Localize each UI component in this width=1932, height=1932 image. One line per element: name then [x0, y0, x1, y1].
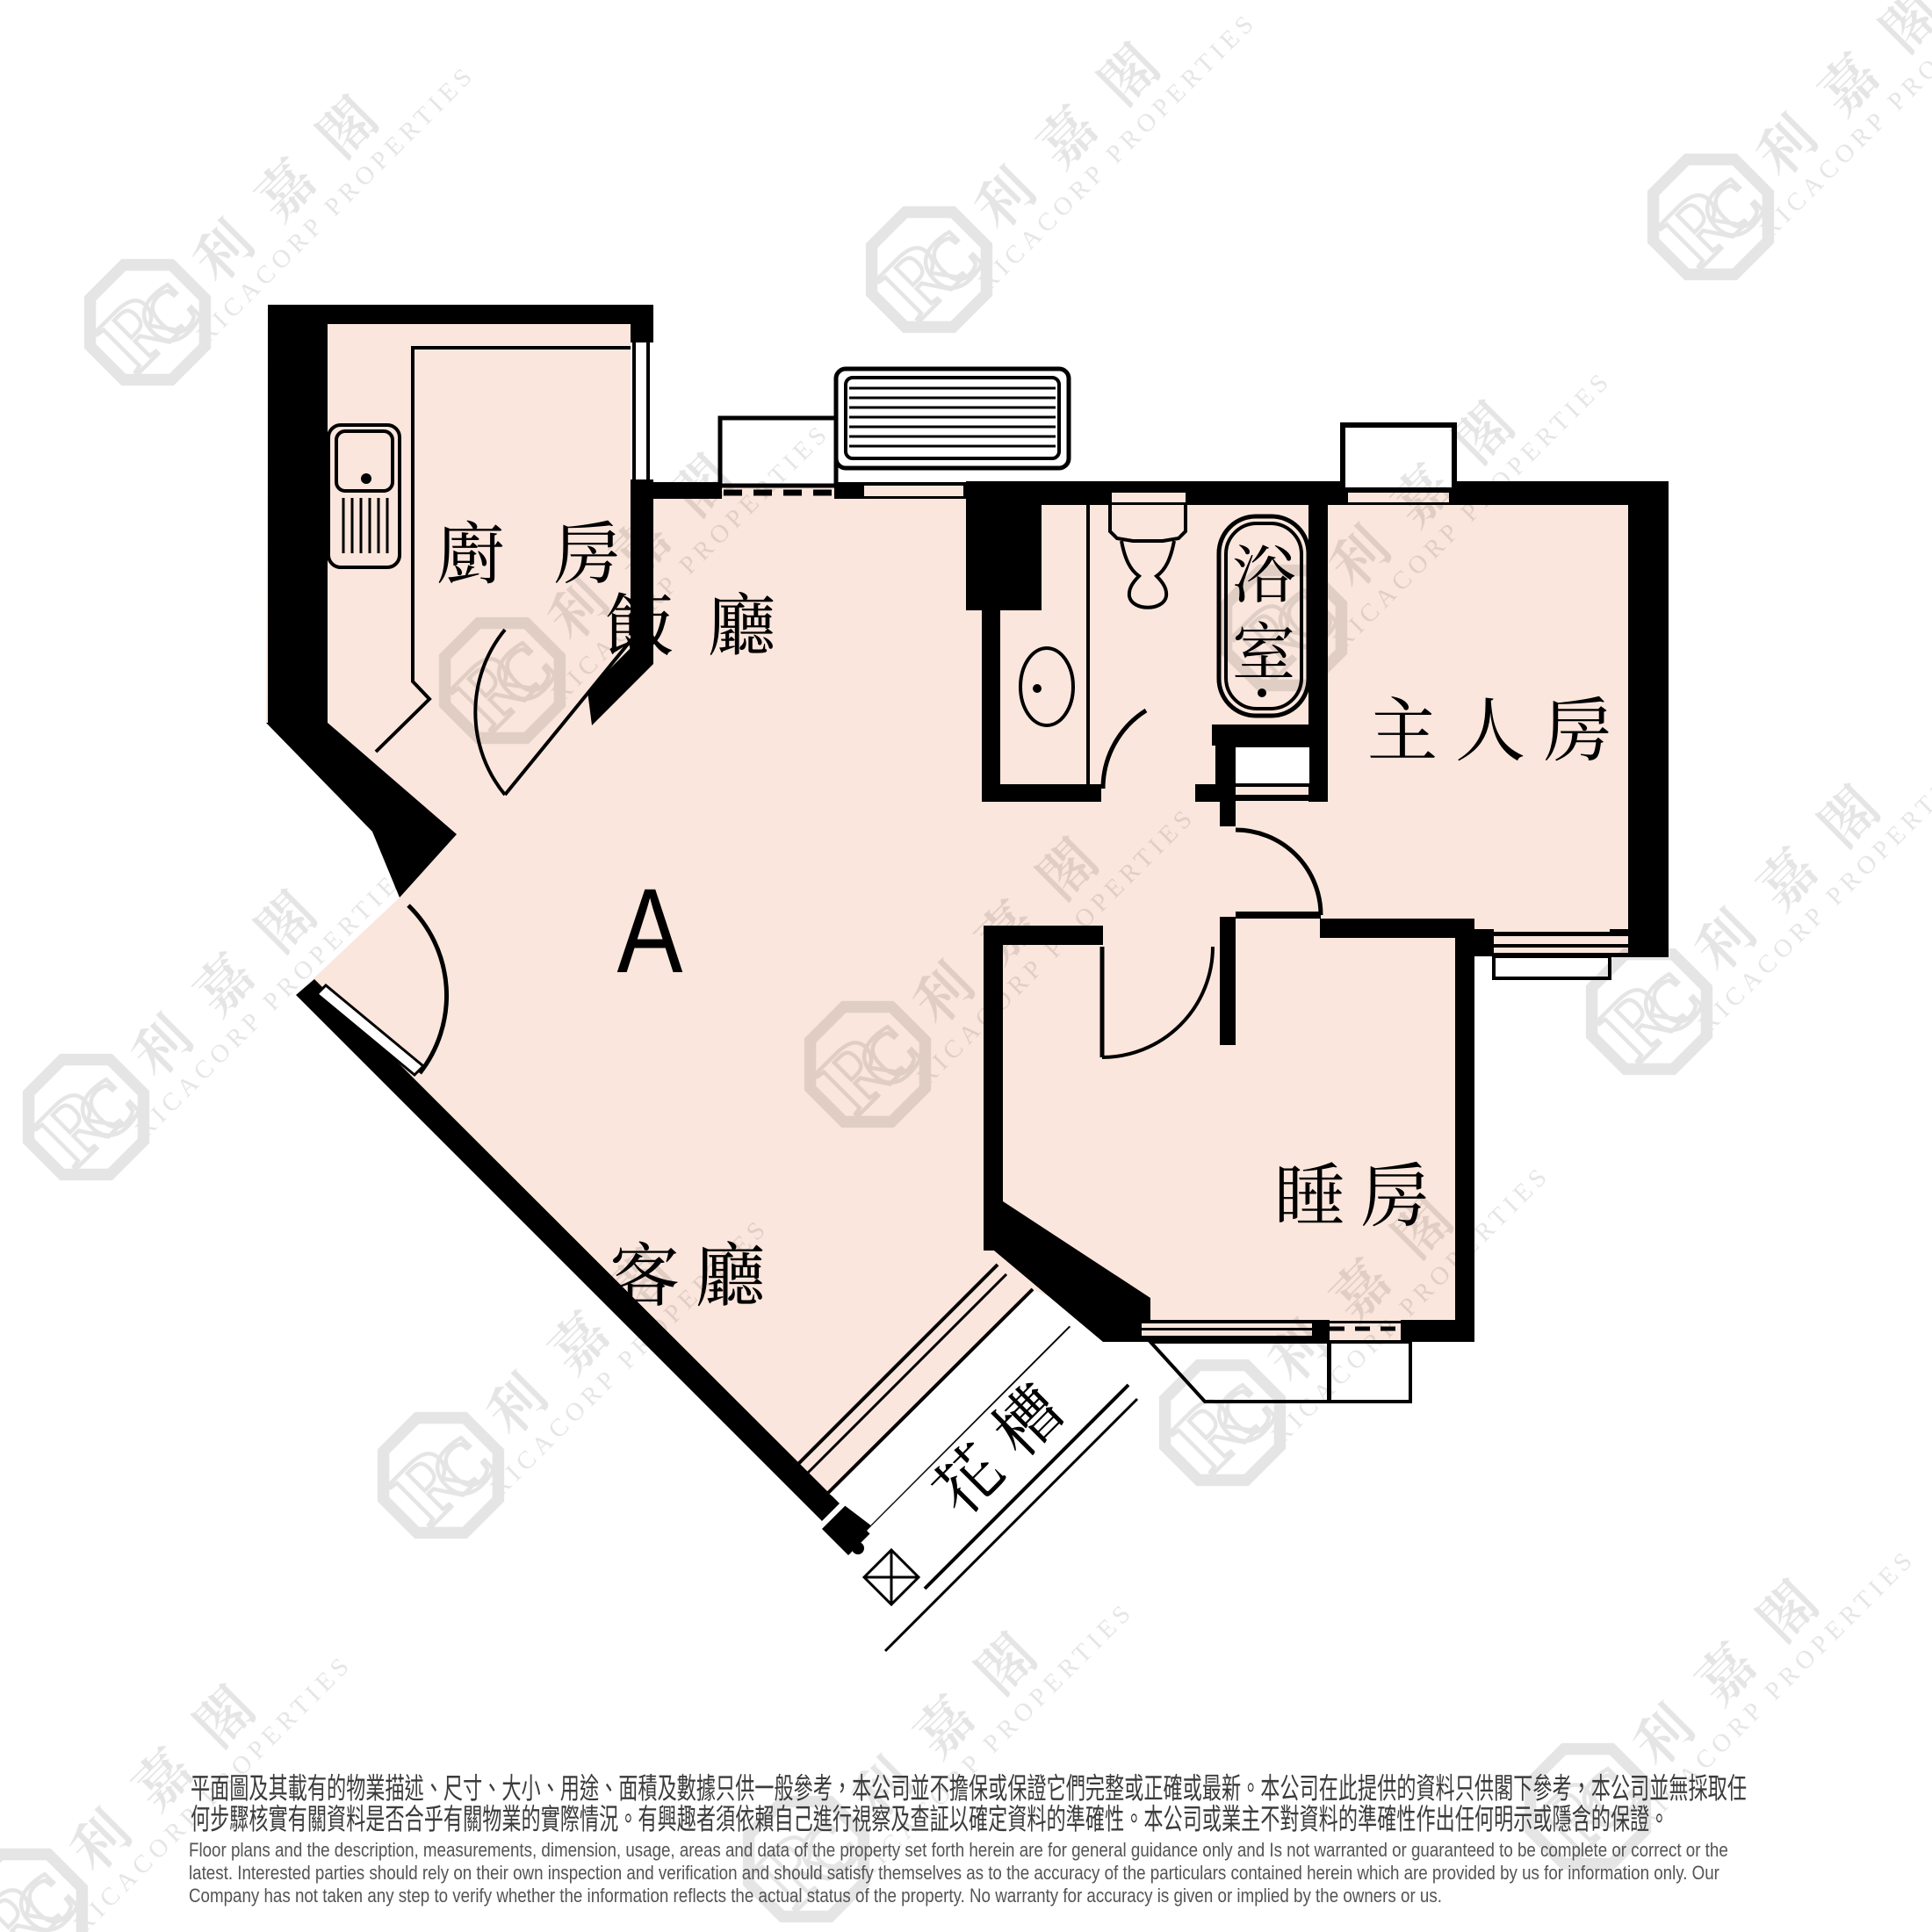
svg-text:latest. Interested parties sho: latest. Interested parties should rely o…	[189, 1863, 1719, 1885]
svg-text:Company has not taken any step: Company has not taken any step to verify…	[189, 1885, 1442, 1907]
svg-text:A: A	[617, 863, 683, 998]
svg-text:Floor plans and the descriptio: Floor plans and the description, measure…	[189, 1840, 1728, 1862]
